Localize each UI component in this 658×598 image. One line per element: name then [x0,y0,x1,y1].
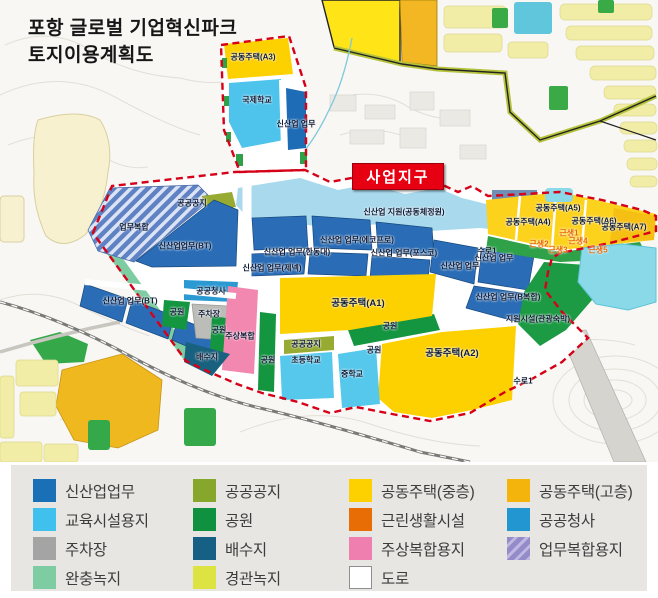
map-label: 공원 [367,345,382,356]
legend-column: 공동주택(중층)근린생활시설주상복합용지도로 [349,479,474,589]
legend-swatch [349,508,372,531]
legend-label: 공동주택(고층) [539,480,632,502]
legend-label: 공공공지 [225,480,281,502]
map-label: 국제학교 [242,95,271,106]
map-label: 수로1 [477,246,496,257]
legend-swatch [507,479,530,502]
map-label: 신산업 업무 [276,119,315,130]
map-label: 공원 [170,307,185,318]
legend-swatch [193,479,216,502]
map-label: 신산업 업무(한동대) [264,247,330,258]
map-label: 지원시설(관광숙박) [506,314,570,325]
legend-item: 공동주택(중층) [349,479,474,502]
map-label: 중학교 [341,369,363,380]
map-label: 공공공지 [291,339,320,350]
legend-swatch [349,566,372,589]
map-label: 신산업 업무(제넥) [242,263,301,274]
zone-international-school [229,79,284,148]
legend-item: 공원 [193,508,281,531]
legend-column: 신산업업무교육시설용지주차장완충녹지 [33,479,149,589]
map-canvas: 공동주택(A3)국제학교신산업 업무공공공지업무복합신산업업무(BT)신산업 지… [0,0,658,462]
legend-label: 신산업업무 [65,480,135,502]
legend-label: 근린생활시설 [381,509,465,531]
map-label: 공동주택(A1) [331,295,384,309]
legend-label: 업무복합용지 [539,538,623,560]
map-label: 공공공지 [177,198,206,209]
legend-label: 도로 [381,567,409,589]
legend-item: 교육시설용지 [33,508,149,531]
legend-swatch [33,566,56,589]
map-label: 공공청사 [196,286,225,297]
map-label: 근생3 [548,245,567,256]
legend-item: 도로 [349,566,474,589]
legend-item: 공동주택(고층) [507,479,632,502]
map-label: 신산업 업무(B복합) [476,292,541,303]
legend-swatch [193,508,216,531]
legend-label: 주차장 [65,538,107,560]
legend-swatch [33,479,56,502]
legend-swatch [193,537,216,560]
map-label: 초등학교 [291,355,320,366]
map-label: 근생5 [588,245,607,256]
map-title-line1: 포항 글로벌 기업혁신파크 [28,16,237,43]
legend-swatch [33,537,56,560]
map-label: 근생4 [568,236,587,247]
map-label: 공동주택(A4) [506,217,551,228]
legend-label: 교육시설용지 [65,509,149,531]
legend-swatch [193,566,216,589]
legend-item: 완충녹지 [33,566,149,589]
existing-area-ne [322,0,657,187]
legend-label: 완충녹지 [65,567,121,589]
legend-swatch [507,508,530,531]
map-label: 근생2 [529,239,548,250]
map-label: 공동주택(A5) [536,203,581,214]
legend-item: 주차장 [33,537,149,560]
legend-item: 신산업업무 [33,479,149,502]
legend-swatch [349,537,372,560]
map-label: 공원 [261,355,276,366]
legend-label: 공원 [225,509,253,531]
map-label: 배수지 [196,352,218,363]
map-label: 신산업업무(BT) [159,241,212,252]
map-label: 공동주택(A7) [602,222,647,233]
map-title: 포항 글로벌 기업혁신파크 토지이용계획도 [28,16,237,69]
legend-label: 공동주택(중층) [381,480,474,502]
legend-column: 공동주택(고층)공공청사업무복합용지 [507,479,632,560]
land-use-plan-page: 공동주택(A3)국제학교신산업 업무공공공지업무복합신산업업무(BT)신산업 지… [0,0,658,598]
map-label: 신산업 지원(공동체정원) [363,207,444,218]
map-label: 신산업 업무 [440,261,479,272]
legend-swatch [33,508,56,531]
legend-column: 공공공지공원배수지경관녹지 [193,479,281,589]
map-label: 업무복합 [119,222,148,233]
map-label: 공원 [383,321,398,332]
map-label: 주차장 [198,309,220,320]
legend-panel: 신산업업무교육시설용지주차장완충녹지공공공지공원배수지경관녹지공동주택(중층)근… [11,465,647,591]
legend-label: 공공청사 [539,509,595,531]
map-label: 신산업 업무(BT) [102,296,157,307]
map-label: 신산업 업무(포스코) [371,248,437,259]
legend-item: 업무복합용지 [507,537,632,560]
legend-label: 배수지 [225,538,267,560]
map-label: 공동주택(A2) [425,345,478,359]
project-district-badge: 사업지구 [352,163,444,190]
legend-item: 공공공지 [193,479,281,502]
map-label: 주상복합 [225,331,254,342]
legend-item: 주상복합용지 [349,537,474,560]
map-title-line2: 토지이용계획도 [28,43,237,70]
map-label: 수로1 [513,376,532,387]
legend-item: 경관녹지 [193,566,281,589]
map-label: 신산업 업무(에코프로) [320,235,394,246]
background-buildings [330,92,486,159]
legend-swatch [507,537,530,560]
legend-label: 경관녹지 [225,567,281,589]
legend-item: 공공청사 [507,508,632,531]
legend-label: 주상복합용지 [381,538,465,560]
legend-item: 배수지 [193,537,281,560]
map-label: 공원 [212,325,227,336]
legend-item: 근린생활시설 [349,508,474,531]
legend-swatch [349,479,372,502]
